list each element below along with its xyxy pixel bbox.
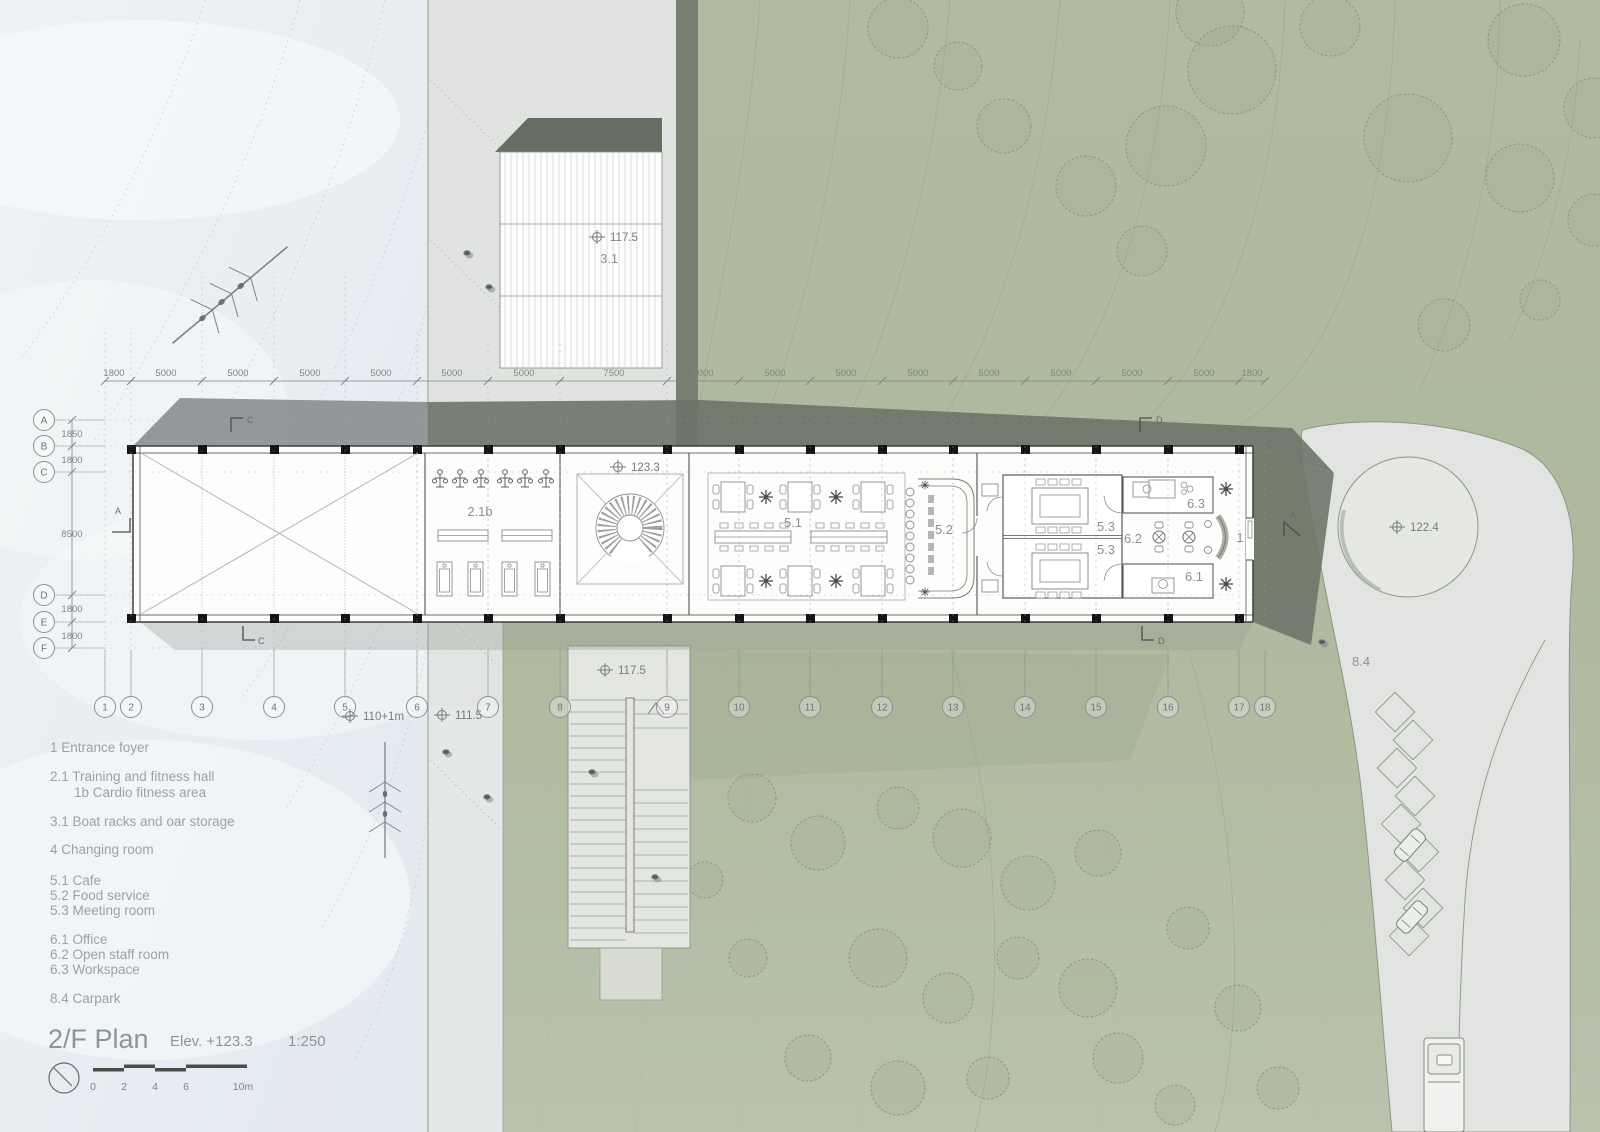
scale-tick: 10m (233, 1081, 254, 1093)
top-dim: 5000 (764, 368, 785, 379)
top-dim: 5000 (370, 368, 391, 379)
room-label-foyer: 1 (1236, 530, 1243, 545)
section-letter-c-top: C (247, 415, 254, 425)
title-scale: 1:250 (288, 1033, 326, 1050)
top-dim: 5000 (1050, 368, 1071, 379)
legend-item: 5.3 Meeting room (50, 903, 155, 918)
grid-col: 1 (102, 703, 108, 714)
grid-row: C (40, 468, 47, 479)
top-dim: 5000 (441, 368, 462, 379)
page-title: 2/F Plan (48, 1024, 149, 1054)
grid-col: 17 (1233, 703, 1245, 714)
room-label-office: 6.1 (1185, 569, 1203, 584)
top-dim: 5000 (907, 368, 928, 379)
room-label-carpark: 8.4 (1352, 654, 1370, 669)
truck (1424, 1038, 1464, 1132)
room-label-workspace: 6.3 (1187, 496, 1205, 511)
scale-tick: 6 (183, 1081, 189, 1093)
grid-row: B (41, 442, 48, 453)
grid-row: E (41, 618, 48, 629)
room-label-staff: 6.2 (1124, 531, 1142, 546)
section-letter-a-right: A (1290, 510, 1296, 520)
grid-col: 11 (805, 703, 816, 714)
top-dim: 5000 (299, 368, 320, 379)
top-dim: 5000 (835, 368, 856, 379)
water-level: 110+1m (363, 711, 404, 723)
grid-col: 2 (128, 703, 134, 714)
top-dim: 5000 (1193, 368, 1214, 379)
grid-col: 6 (414, 703, 420, 714)
grid-col: 7 (485, 703, 491, 714)
section-letter-d-bottom: D (1158, 636, 1165, 646)
section-letter-a-left: A (115, 506, 121, 516)
road-level: 122.4 (1410, 522, 1439, 534)
grid-col: 8 (557, 703, 563, 714)
legend-item: 5.2 Food service (50, 888, 150, 903)
legend-item: 1b Cardio fitness area (74, 785, 207, 800)
top-dim: 5000 (1121, 368, 1142, 379)
grid-row: A (41, 416, 48, 427)
ramp-level: 111.5 (455, 710, 482, 722)
legend-item: 6.1 Office (50, 932, 108, 947)
left-dim: 1800 (61, 455, 82, 466)
top-dim: 5000 (692, 368, 713, 379)
room-label-meeting-1: 5.3 (1097, 519, 1115, 534)
legend-item: 6.3 Workspace (50, 962, 140, 977)
grid-col: 10 (733, 703, 745, 714)
top-dim: 5000 (513, 368, 534, 379)
scale-tick: 4 (152, 1081, 158, 1093)
section-letter-c-bottom: C (258, 636, 265, 646)
boat-store-level: 117.5 (610, 232, 638, 244)
legend-item: 8.4 Carpark (50, 991, 121, 1006)
left-dim: 1850 (61, 429, 82, 440)
room-label-food-service: 5.2 (935, 522, 953, 537)
left-dim: 1800 (61, 604, 82, 615)
top-dim: 5000 (978, 368, 999, 379)
top-dim: 5000 (227, 368, 248, 379)
left-dim: 1800 (61, 631, 82, 642)
top-dim: 1800 (103, 368, 124, 379)
left-dim: 8500 (61, 529, 82, 540)
top-dim: 5000 (155, 368, 176, 379)
floor-plan-svg: 117.5 3.1 117.5 (0, 0, 1600, 1132)
grid-col: 9 (664, 703, 670, 714)
grid-col: 3 (199, 703, 205, 714)
grid-col: 15 (1090, 703, 1102, 714)
grid-col: 14 (1019, 703, 1031, 714)
boat-store-building (500, 152, 662, 368)
grid-col: 4 (271, 703, 277, 714)
meeting-rooms: 5.3 5.3 (987, 475, 1122, 598)
legend-item: 5.1 Cafe (50, 873, 101, 888)
grid-row: D (40, 591, 47, 602)
grid-col: 16 (1162, 703, 1174, 714)
top-dim: 7500 (603, 368, 624, 379)
room-label-boat-store: 3.1 (600, 251, 618, 266)
legend-item: 4 Changing room (50, 842, 154, 857)
top-dim: 1800 (1241, 368, 1262, 379)
room-label-cafe: 5.1 (784, 515, 802, 530)
legend-item: 6.2 Open staff room (50, 947, 169, 962)
scale-tick: 2 (121, 1081, 127, 1093)
grid-row: F (41, 644, 47, 655)
grid-col: 13 (947, 703, 959, 714)
floor-plan-canvas: 117.5 3.1 117.5 (0, 0, 1600, 1132)
legend-item: 1 Entrance foyer (50, 740, 150, 755)
grid-col: 18 (1259, 703, 1271, 714)
scale-tick: 0 (90, 1081, 96, 1093)
legend-item: 3.1 Boat racks and oar storage (50, 814, 235, 829)
stair-level: 117.5 (618, 665, 646, 677)
room-label-fitness: 2.1b (467, 504, 492, 519)
legend-item: 2.1 Training and fitness hall (50, 769, 214, 784)
section-letter-d-top: D (1156, 415, 1163, 425)
title-elevation: Elev. +123.3 (170, 1033, 253, 1050)
grid-col: 12 (876, 703, 888, 714)
room-label-meeting-2: 5.3 (1097, 542, 1115, 557)
